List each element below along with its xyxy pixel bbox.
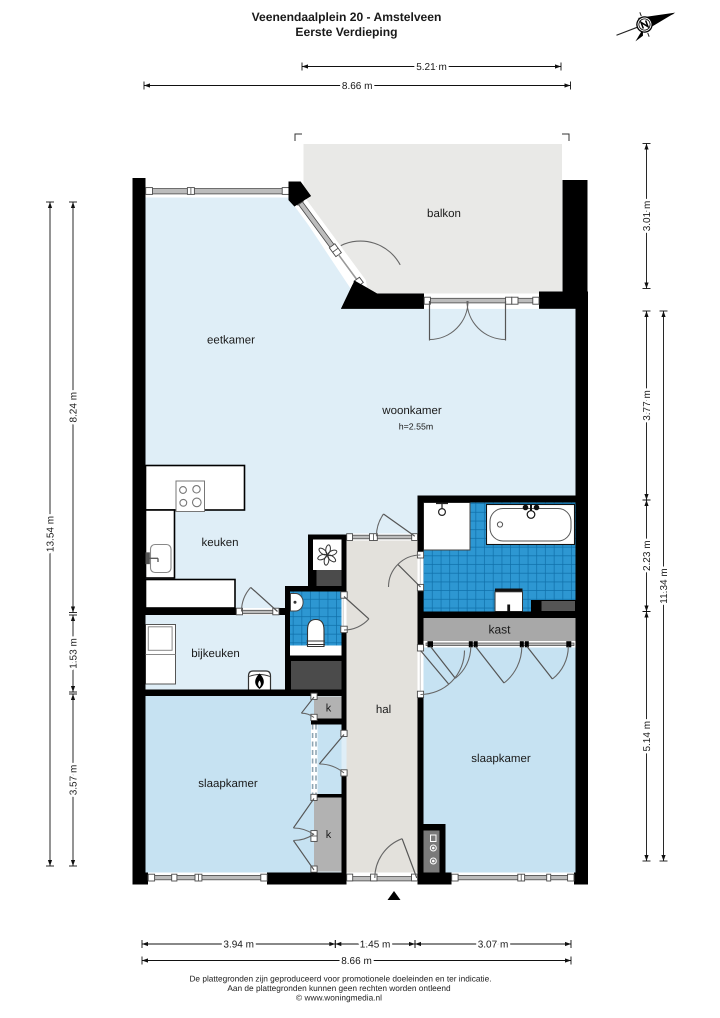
- svg-text:kast: kast: [488, 623, 511, 637]
- svg-text:8.66 m: 8.66 m: [341, 956, 372, 967]
- svg-text:3.77 m: 3.77 m: [642, 390, 653, 421]
- svg-text:eetkamer: eetkamer: [207, 335, 255, 347]
- svg-text:1.45 m: 1.45 m: [360, 939, 391, 950]
- svg-text:3.07 m: 3.07 m: [478, 939, 509, 950]
- svg-text:1.53 m: 1.53 m: [68, 638, 79, 669]
- svg-text:5.21 m: 5.21 m: [416, 62, 447, 73]
- svg-text:woonkamer: woonkamer: [381, 405, 442, 417]
- svg-text:3.57 m: 3.57 m: [68, 765, 79, 796]
- svg-text:slaapkamer: slaapkamer: [198, 778, 258, 790]
- svg-text:k: k: [326, 829, 332, 841]
- svg-text:3.01 m: 3.01 m: [642, 201, 653, 232]
- svg-text:13.54 m: 13.54 m: [45, 516, 56, 552]
- svg-text:8.66 m: 8.66 m: [342, 81, 373, 92]
- svg-text:De plattegronden zijn geproduc: De plattegronden zijn geproduceerd voor …: [189, 974, 491, 984]
- svg-text:5.14 m: 5.14 m: [642, 721, 653, 752]
- svg-text:© www.woningmedia.nl: © www.woningmedia.nl: [296, 993, 382, 1003]
- svg-text:slaapkamer: slaapkamer: [471, 753, 531, 765]
- svg-text:bijkeuken: bijkeuken: [191, 648, 240, 660]
- svg-text:Veenendaalplein 20 - Amstelvee: Veenendaalplein 20 - Amstelveen: [252, 10, 442, 24]
- svg-text:k: k: [326, 703, 332, 715]
- svg-text:Eerste Verdieping: Eerste Verdieping: [295, 25, 397, 39]
- svg-text:Aan de plattegronden kunnen ge: Aan de plattegronden kunnen geen rechten…: [227, 983, 451, 993]
- svg-text:3.94 m: 3.94 m: [223, 939, 254, 950]
- svg-text:keuken: keuken: [201, 537, 238, 549]
- svg-text:2.23 m: 2.23 m: [642, 540, 653, 571]
- svg-text:hal: hal: [376, 704, 391, 716]
- svg-text:8.24 m: 8.24 m: [68, 392, 79, 423]
- svg-text:balkon: balkon: [427, 208, 461, 220]
- svg-text:h=2.55m: h=2.55m: [399, 422, 433, 432]
- svg-text:11.34 m: 11.34 m: [659, 568, 670, 603]
